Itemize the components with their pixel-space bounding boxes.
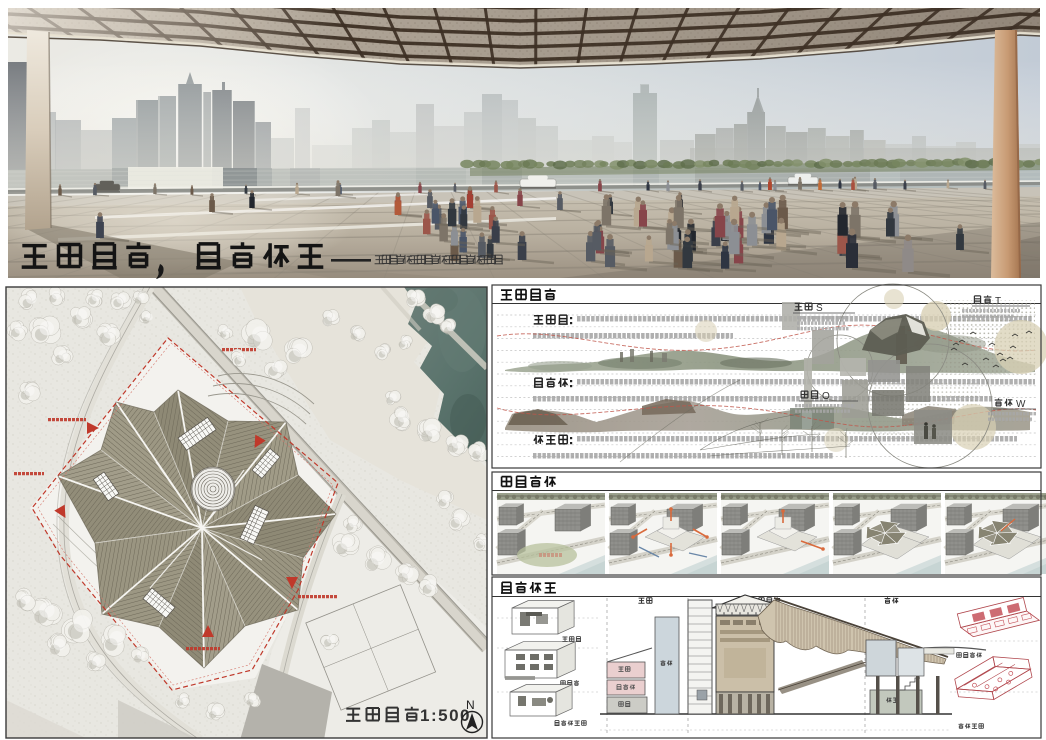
svg-text:N: N [466, 698, 475, 712]
svg-text:W: W [1016, 399, 1026, 410]
svg-text:T: T [995, 296, 1001, 307]
svg-text:O: O [822, 391, 830, 402]
svg-text:S: S [816, 303, 823, 314]
